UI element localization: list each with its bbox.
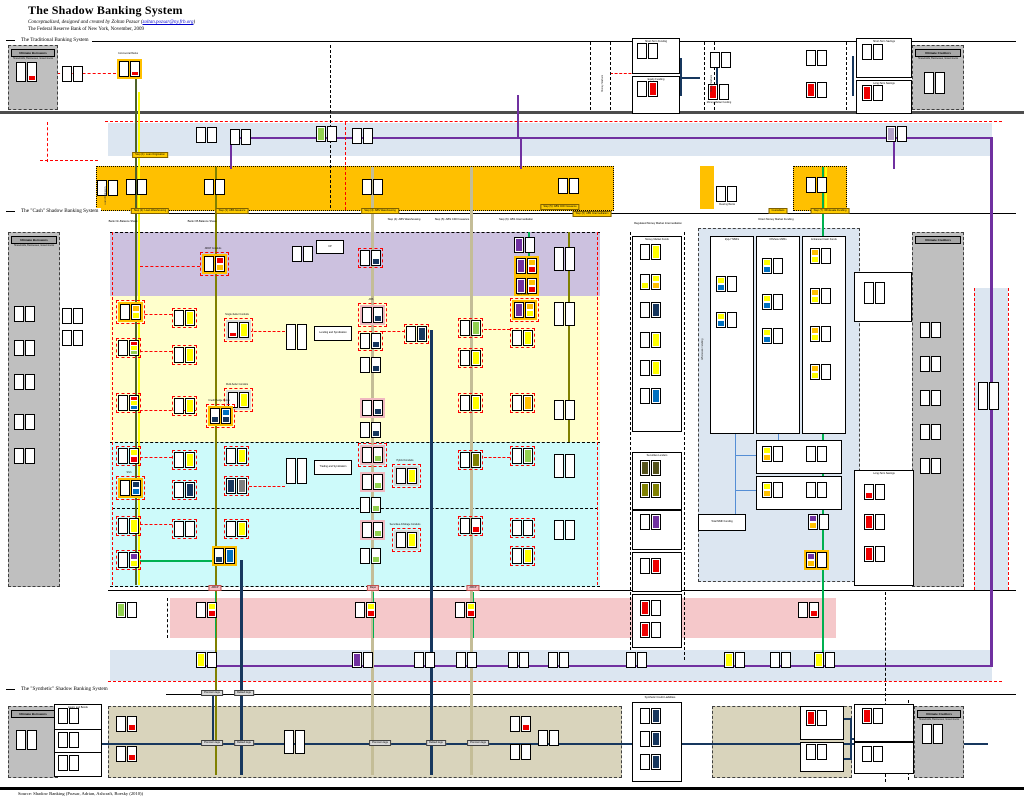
balance-sheet-box xyxy=(873,44,883,60)
blank-segment xyxy=(457,604,464,617)
asset-chip xyxy=(653,283,660,289)
balance-sheet-pair xyxy=(284,730,305,754)
balance-sheet-pair xyxy=(512,395,533,411)
entity-frame-label: Short-Term Savings xyxy=(857,40,911,43)
balance-sheet-box xyxy=(825,652,835,668)
balance-sheet-box xyxy=(425,652,435,668)
asset-chip xyxy=(653,362,660,375)
balance-sheet-pair xyxy=(62,66,83,82)
asset-chip xyxy=(653,733,660,746)
balance-sheet-box xyxy=(920,390,930,406)
blank-segment xyxy=(567,456,574,477)
balance-sheet-box xyxy=(773,328,783,344)
asset-chip xyxy=(375,456,382,462)
blank-segment xyxy=(373,550,380,556)
blank-segment xyxy=(139,181,146,194)
balance-sheet-box xyxy=(875,514,885,530)
blank-segment xyxy=(819,84,826,97)
balance-sheet-box xyxy=(931,424,941,440)
balance-sheet-box xyxy=(25,374,35,390)
balance-sheet-pair xyxy=(174,310,195,326)
balance-sheet-box xyxy=(116,602,126,618)
asset-chip xyxy=(529,287,536,293)
balance-sheet-box xyxy=(215,256,225,272)
asset-chip xyxy=(642,283,649,289)
connector-line-vertical xyxy=(590,42,591,110)
asset-chip xyxy=(653,484,660,497)
balance-sheet-box xyxy=(554,400,564,420)
balance-sheet-box xyxy=(226,448,236,464)
balance-sheet-box xyxy=(637,43,647,59)
balance-sheet-box xyxy=(810,248,820,264)
balance-sheet-box xyxy=(373,179,383,195)
balance-sheet-pair xyxy=(762,294,783,310)
balance-sheet-box xyxy=(512,330,522,346)
subtitle: Conceptualized, designed and created by … xyxy=(28,20,195,25)
step-label-pill: Premium legs xyxy=(369,740,391,746)
asset-chip xyxy=(812,257,819,263)
balance-sheet-box xyxy=(862,708,872,724)
balance-sheet-pair xyxy=(510,744,531,760)
balance-sheet-box xyxy=(651,514,661,530)
balance-sheet-pair xyxy=(640,708,661,724)
cluster-label: Securities Arbitrage Conduits xyxy=(382,524,428,527)
asset-chip xyxy=(368,604,375,610)
balance-sheet-pair xyxy=(762,258,783,274)
balance-sheet-box xyxy=(798,602,808,618)
connector-line-vertical xyxy=(517,95,519,138)
blank-segment xyxy=(176,312,183,325)
blank-segment xyxy=(571,180,578,193)
blank-segment xyxy=(642,516,649,529)
asset-chip xyxy=(808,554,815,560)
asset-chip xyxy=(473,527,480,533)
cluster-label: Multi-Seller Conduits xyxy=(214,384,260,387)
balance-sheet-pair xyxy=(640,558,661,574)
blank-segment xyxy=(642,710,649,723)
shadow-banking-diagram: The Shadow Banking System Conceptualized… xyxy=(0,0,1024,800)
balance-sheet-pair xyxy=(558,178,579,194)
blank-segment xyxy=(514,450,521,463)
balance-sheet-box xyxy=(62,66,72,82)
balance-sheet-box xyxy=(73,308,83,324)
blank-segment xyxy=(642,733,649,746)
balance-sheet-box xyxy=(69,755,79,771)
blank-segment xyxy=(866,486,873,492)
section-header: The Traditional Banking System xyxy=(18,37,92,43)
balance-sheet-pair xyxy=(16,62,37,82)
asset-chip xyxy=(468,604,475,610)
blank-segment xyxy=(362,359,369,372)
blank-segment xyxy=(305,248,312,261)
balance-sheet-pair xyxy=(978,382,999,410)
asset-chip xyxy=(129,755,136,761)
asset-chip xyxy=(642,602,649,615)
balance-sheet-box xyxy=(817,446,827,462)
balance-sheet-pair xyxy=(286,324,307,350)
blank-segment xyxy=(808,52,815,65)
blank-segment xyxy=(875,748,882,761)
balance-sheet-box xyxy=(806,177,816,193)
balance-sheet-box xyxy=(512,448,522,464)
blank-segment xyxy=(653,624,660,637)
step-label-pill: Step (3): ABS Issuance xyxy=(216,208,249,214)
blank-segment xyxy=(232,131,239,144)
blank-segment xyxy=(29,741,36,749)
balance-sheet-pair xyxy=(810,364,831,380)
balance-sheet-box xyxy=(554,302,564,326)
balance-sheet-box xyxy=(120,304,130,320)
blank-segment xyxy=(29,732,36,740)
blank-segment xyxy=(375,476,382,482)
balance-sheet-box xyxy=(640,622,650,638)
balance-sheet-box xyxy=(640,332,650,348)
balance-sheet-pair xyxy=(554,302,575,326)
asset-chip xyxy=(368,611,375,617)
asset-chip xyxy=(812,366,819,372)
asset-chip xyxy=(810,516,817,522)
blank-segment xyxy=(71,734,78,747)
blank-segment xyxy=(875,710,882,723)
blank-segment xyxy=(288,326,295,349)
balance-sheet-box xyxy=(196,602,206,618)
balance-sheet-pair xyxy=(710,52,731,68)
blank-segment xyxy=(375,309,382,315)
asset-chip xyxy=(650,83,657,96)
balance-sheet-box xyxy=(174,310,184,326)
panel-subtitle: Households, Businesses, Governments xyxy=(9,58,57,61)
blank-segment xyxy=(821,516,828,529)
balance-sheet-pair xyxy=(208,406,233,426)
balance-sheet-pair xyxy=(862,708,883,724)
balance-sheet-pair xyxy=(806,82,827,98)
note-box: CP xyxy=(316,240,344,254)
balance-sheet-pair xyxy=(554,400,575,420)
balance-sheet-box xyxy=(14,374,24,390)
balance-sheet-box xyxy=(69,708,79,724)
blank-segment xyxy=(922,358,929,371)
balance-sheet-pair xyxy=(196,127,217,143)
connector-line-vertical xyxy=(846,42,847,110)
balance-sheet-box xyxy=(651,274,661,290)
balance-sheet-box xyxy=(806,446,816,462)
balance-sheet-pair xyxy=(810,288,831,304)
balance-sheet-box xyxy=(508,652,518,668)
balance-sheet-pair xyxy=(640,731,661,747)
balance-sheet-pair xyxy=(716,276,737,292)
note-box: Lending and Syndication xyxy=(314,326,352,341)
step-label-pill: Step (5): ABS CDO Issuance xyxy=(540,204,579,210)
blank-segment xyxy=(551,732,558,745)
balance-sheet-box xyxy=(810,326,820,342)
blank-segment xyxy=(712,54,719,67)
balance-sheet-box xyxy=(640,754,650,770)
balance-sheet-box xyxy=(640,558,650,574)
cluster-label: Clearing Banks xyxy=(704,204,750,207)
balance-sheet-box xyxy=(931,390,941,406)
balance-sheet-box xyxy=(455,602,465,618)
balance-sheet-box xyxy=(558,178,568,194)
blank-segment xyxy=(75,310,82,323)
balance-sheet-pair xyxy=(864,484,885,500)
blank-segment xyxy=(729,314,736,327)
blank-segment xyxy=(808,179,815,192)
balance-sheet-box xyxy=(471,320,481,336)
connector-line-horizontal xyxy=(230,137,990,139)
balance-sheet-pair xyxy=(924,72,945,94)
blank-segment xyxy=(864,46,871,52)
balance-sheet-pair xyxy=(456,652,477,668)
balance-sheet-box xyxy=(640,600,650,616)
diagram-label: Bank Off-Balance Sheet xyxy=(188,220,217,223)
connector-line-horizontal xyxy=(137,560,215,562)
blank-segment xyxy=(650,45,657,51)
asset-chip xyxy=(527,304,534,310)
balance-sheet-box xyxy=(512,395,522,411)
blank-segment xyxy=(866,284,873,303)
connector-line-vertical xyxy=(630,232,631,660)
connector-line-vertical xyxy=(430,330,433,775)
balance-sheet-pair xyxy=(804,550,829,570)
blank-segment xyxy=(16,450,23,463)
blank-segment xyxy=(877,486,884,499)
blank-segment xyxy=(373,359,380,365)
blank-segment xyxy=(373,252,380,258)
balance-sheet-box xyxy=(523,330,533,346)
blank-segment xyxy=(398,470,405,483)
connector-line-horizontal xyxy=(40,160,98,161)
blank-segment xyxy=(230,324,237,327)
balance-sheet-pair xyxy=(62,330,83,346)
asset-chip xyxy=(354,654,361,667)
note-box: Trading and Syndication xyxy=(314,460,352,475)
blank-segment xyxy=(71,710,78,723)
blank-segment xyxy=(462,520,469,533)
balance-sheet-pair xyxy=(514,237,535,253)
blank-segment xyxy=(122,482,129,495)
balance-sheet-box xyxy=(129,395,139,411)
step-label-pill: Step (6): ABS Intermediation xyxy=(573,211,612,217)
blank-segment xyxy=(18,732,25,749)
balance-sheet-box xyxy=(25,414,35,430)
asset-chip xyxy=(212,417,219,423)
balance-sheet-pair xyxy=(640,274,661,290)
blank-segment xyxy=(737,654,744,667)
blank-segment xyxy=(27,308,34,321)
balance-sheet-box xyxy=(523,395,533,411)
balance-sheet-pair xyxy=(512,300,537,320)
balance-sheet-box xyxy=(716,186,726,202)
balance-sheet-pair xyxy=(460,452,481,468)
balance-sheet-pair xyxy=(360,305,385,325)
asset-chip xyxy=(375,531,382,537)
blank-segment xyxy=(514,397,521,410)
blank-segment xyxy=(642,390,649,403)
asset-chip xyxy=(198,654,205,667)
blank-segment xyxy=(375,181,382,194)
balance-sheet-box xyxy=(58,732,68,748)
blank-segment xyxy=(364,309,371,322)
asset-chip xyxy=(187,349,194,362)
blank-segment xyxy=(75,68,82,81)
asset-chip xyxy=(653,560,660,573)
balance-sheet-box xyxy=(137,179,147,195)
blank-segment xyxy=(120,342,127,355)
blank-segment xyxy=(823,328,830,341)
blank-segment xyxy=(926,74,933,93)
blank-segment xyxy=(122,306,129,319)
balance-sheet-box xyxy=(525,302,535,318)
balance-sheet-box xyxy=(460,452,470,468)
balance-sheet-box xyxy=(640,708,650,724)
blank-segment xyxy=(27,450,34,463)
balance-sheet-box xyxy=(651,600,661,616)
blank-segment xyxy=(875,87,882,100)
balance-sheet-box xyxy=(920,322,930,338)
asset-chip xyxy=(523,725,530,731)
blank-segment xyxy=(64,332,71,345)
balance-sheet-pair xyxy=(920,424,941,440)
balance-sheet-box xyxy=(366,602,376,618)
page-title: The Shadow Banking System xyxy=(28,3,195,18)
asset-chip xyxy=(812,335,819,341)
step-label-pill: Premium legs xyxy=(467,740,489,746)
balance-sheet-box xyxy=(640,514,650,530)
balance-sheet-box xyxy=(196,127,206,143)
entity-frame-label: Offshore MMFs xyxy=(757,238,799,241)
blank-segment xyxy=(297,732,304,753)
asset-chip xyxy=(217,258,224,264)
balance-sheet-box xyxy=(819,514,829,530)
balance-sheet-box xyxy=(516,278,526,294)
asset-chip xyxy=(518,280,525,293)
balance-sheet-box xyxy=(27,730,37,750)
balance-sheet-box xyxy=(651,754,661,770)
balance-sheet-box xyxy=(360,357,370,373)
balance-sheet-box xyxy=(130,61,140,77)
balance-sheet-box xyxy=(371,422,381,438)
asset-chip xyxy=(864,87,871,100)
balance-sheet-box xyxy=(864,484,874,500)
balance-sheet-box xyxy=(16,62,26,82)
step-label-pill: Custodians xyxy=(769,208,788,214)
balance-sheet-pair xyxy=(202,254,227,274)
blank-segment xyxy=(877,548,884,561)
entity-frame-label: Money Market Funds xyxy=(633,238,681,241)
blank-segment xyxy=(373,424,380,430)
asset-chip xyxy=(131,520,138,533)
blank-segment xyxy=(823,290,830,303)
blank-segment xyxy=(176,484,183,497)
balance-sheet-pair xyxy=(360,357,381,373)
balance-sheet-pair xyxy=(514,256,539,276)
balance-sheet-box xyxy=(297,458,307,484)
connector-line-vertical xyxy=(167,598,168,638)
blank-segment xyxy=(129,748,136,754)
blank-segment xyxy=(642,334,649,347)
connector-line-horizontal xyxy=(105,121,1002,122)
asset-chip xyxy=(812,290,819,296)
panel-title: Ultimate Creditors xyxy=(917,710,961,718)
balance-sheet-pair xyxy=(806,710,827,726)
asset-chip xyxy=(525,332,532,345)
balance-sheet-pair xyxy=(640,482,661,498)
entity-frame-label: Securities Lenders xyxy=(633,454,681,457)
diagram-label: Step (6): ABS Intermediation xyxy=(499,218,533,221)
balance-sheet-pair xyxy=(798,602,819,618)
step-label-pill: Premium legs xyxy=(201,740,223,746)
blank-segment xyxy=(299,326,306,349)
balance-sheet-box xyxy=(355,602,365,618)
balance-sheet-box xyxy=(185,521,195,537)
balance-sheet-box xyxy=(512,520,522,536)
balance-sheet-pair xyxy=(360,398,385,418)
asset-chip xyxy=(653,710,660,723)
balance-sheet-box xyxy=(471,518,481,534)
blank-segment xyxy=(212,410,219,416)
asset-chip xyxy=(373,259,380,265)
asset-chip xyxy=(866,548,873,561)
balance-sheet-box xyxy=(362,447,372,463)
balance-sheet-pair xyxy=(724,652,745,668)
balance-sheet-box xyxy=(821,288,831,304)
blank-segment xyxy=(408,328,415,341)
balance-sheet-box xyxy=(131,304,141,320)
author-email-link[interactable]: zoltan.pozsar@ny.frb.org xyxy=(143,20,194,25)
step-label-pill: Default legs xyxy=(234,690,254,696)
balance-sheet-box xyxy=(651,558,661,574)
asset-chip xyxy=(866,493,873,499)
balance-sheet-box xyxy=(510,716,520,732)
balance-sheet-pair xyxy=(716,312,737,328)
diagram-label: Regulated Money Market Intermediation xyxy=(634,222,682,225)
balance-sheet-box xyxy=(873,708,883,724)
blank-segment xyxy=(128,181,135,194)
balance-sheet-pair xyxy=(292,246,313,262)
balance-sheet-box xyxy=(875,484,885,500)
blank-segment xyxy=(514,550,521,563)
balance-sheet-box xyxy=(363,652,373,668)
diagram-label: Synthetic Credit Liabilities xyxy=(645,696,676,699)
blank-segment xyxy=(132,67,139,70)
balance-sheet-box xyxy=(185,398,195,414)
balance-sheet-box xyxy=(626,652,636,668)
asset-chip xyxy=(473,322,480,335)
blank-segment xyxy=(808,746,815,759)
balance-sheet-box xyxy=(651,460,661,476)
blank-segment xyxy=(299,460,306,483)
blank-segment xyxy=(16,342,23,355)
balance-sheet-box xyxy=(651,244,661,260)
step-label-pill: Step (7): Wholesale Funding xyxy=(811,208,850,214)
blank-segment xyxy=(120,554,127,567)
balance-sheet-box xyxy=(226,478,236,494)
cluster-label: ABCP Conduits xyxy=(190,248,236,251)
balance-sheet-box xyxy=(73,66,83,82)
balance-sheet-pair xyxy=(226,478,247,494)
blank-segment xyxy=(556,402,563,419)
blank-segment xyxy=(819,179,826,192)
balance-sheet-box xyxy=(25,448,35,464)
blank-segment xyxy=(209,654,216,667)
asset-chip xyxy=(726,654,733,667)
connector-line-vertical xyxy=(138,92,140,585)
blank-segment xyxy=(243,131,250,144)
asset-chip xyxy=(133,313,140,319)
asset-chip xyxy=(810,523,817,529)
balance-sheet-box xyxy=(821,364,831,380)
asset-chip xyxy=(223,417,230,423)
